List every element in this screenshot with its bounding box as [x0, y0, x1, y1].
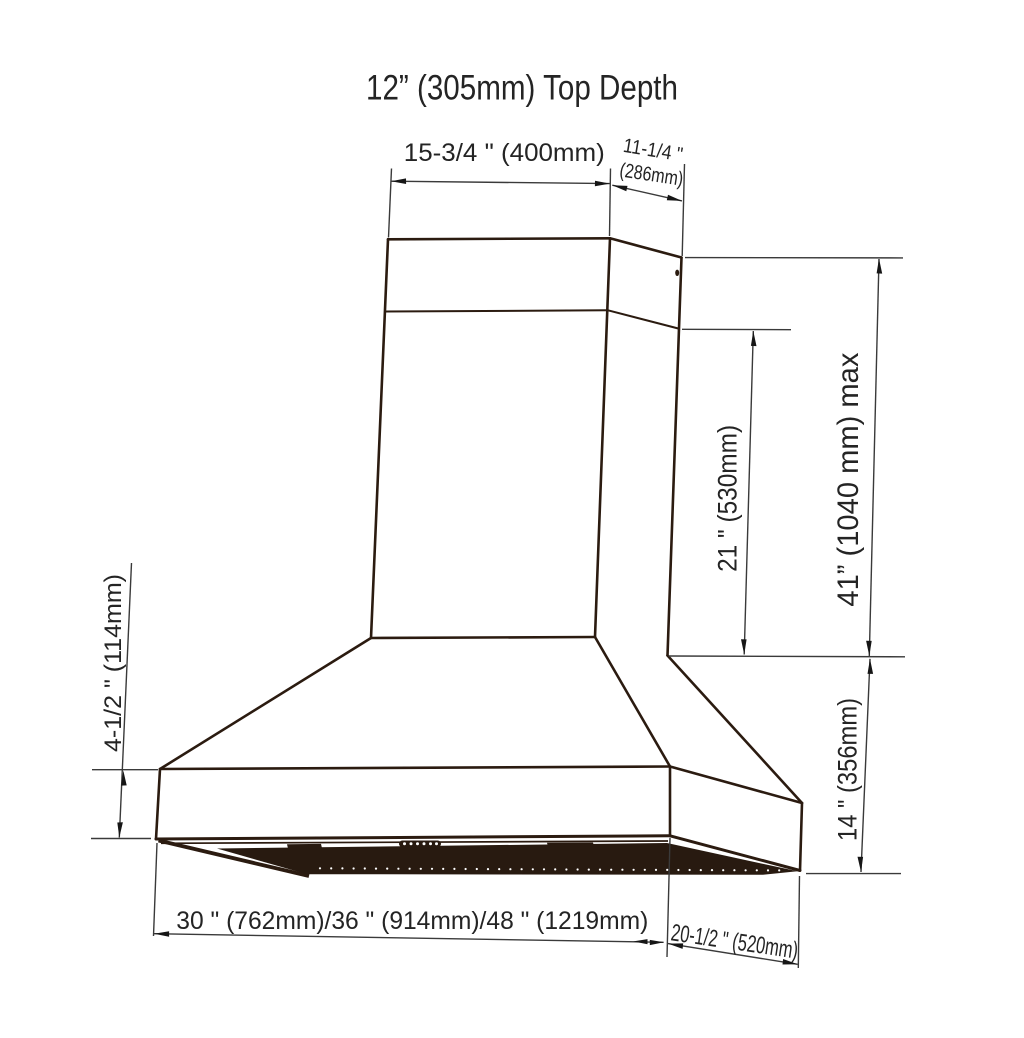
svg-text:21 " (530mm): 21 " (530mm): [712, 425, 742, 572]
svg-text:41” (1040 mm) max: 41” (1040 mm) max: [832, 352, 865, 606]
svg-text:30 " (762mm)/36 " (914mm)/48 ": 30 " (762mm)/36 " (914mm)/48 " (1219mm): [176, 907, 648, 935]
svg-text:4-1/2 " (114mm): 4-1/2 " (114mm): [100, 574, 127, 752]
svg-text:15-3/4 " (400mm): 15-3/4 " (400mm): [404, 139, 605, 167]
svg-text:12” (305mm) Top Depth: 12” (305mm) Top Depth: [366, 67, 678, 107]
svg-text:14 " (356mm): 14 " (356mm): [833, 698, 863, 841]
